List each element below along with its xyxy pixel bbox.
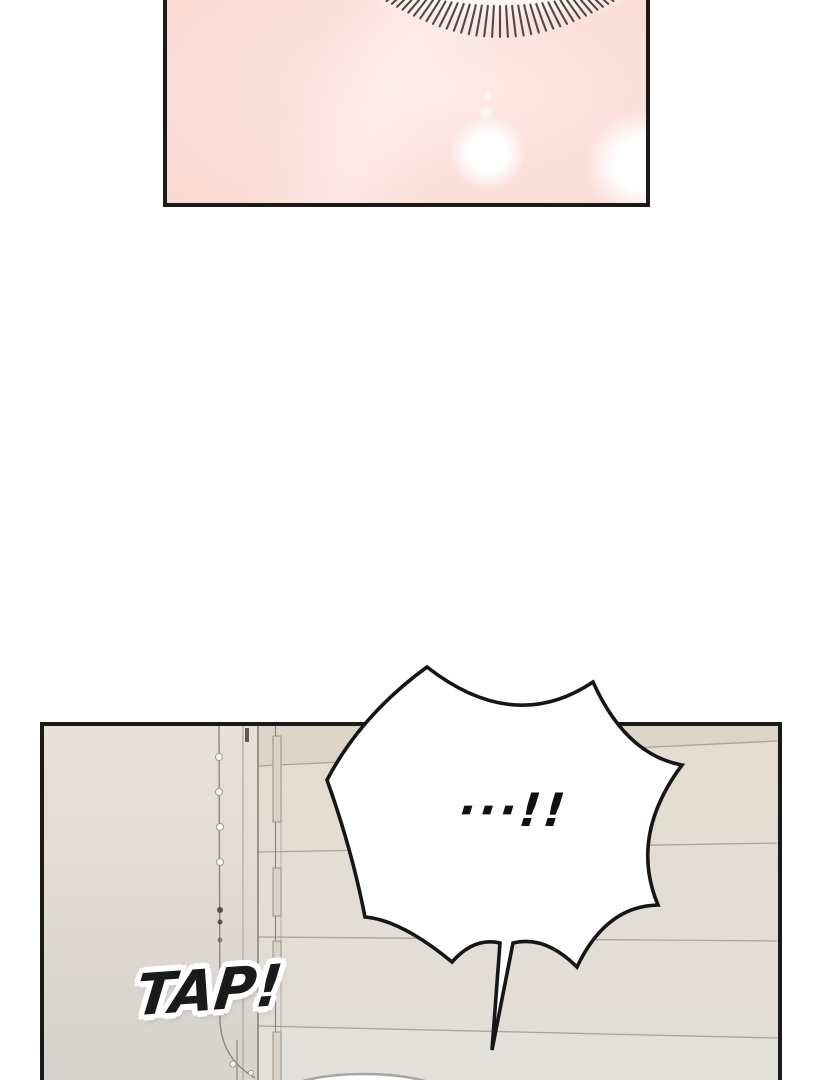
door-latch bbox=[245, 728, 249, 742]
panel-eye-closeup bbox=[163, 0, 650, 207]
speech-bubble-shape bbox=[320, 655, 692, 1057]
sfx-tap-text: TAP! bbox=[133, 953, 286, 1030]
comic-page: ···!! TAP! bbox=[0, 0, 828, 1080]
eyelashes-illustration bbox=[167, 0, 646, 203]
speech-bubble-text: ···!! bbox=[445, 777, 582, 843]
burst-bubble-outline bbox=[327, 667, 682, 1050]
speech-bubble: ···!! bbox=[320, 655, 692, 1057]
blind-cord bbox=[216, 726, 256, 1080]
